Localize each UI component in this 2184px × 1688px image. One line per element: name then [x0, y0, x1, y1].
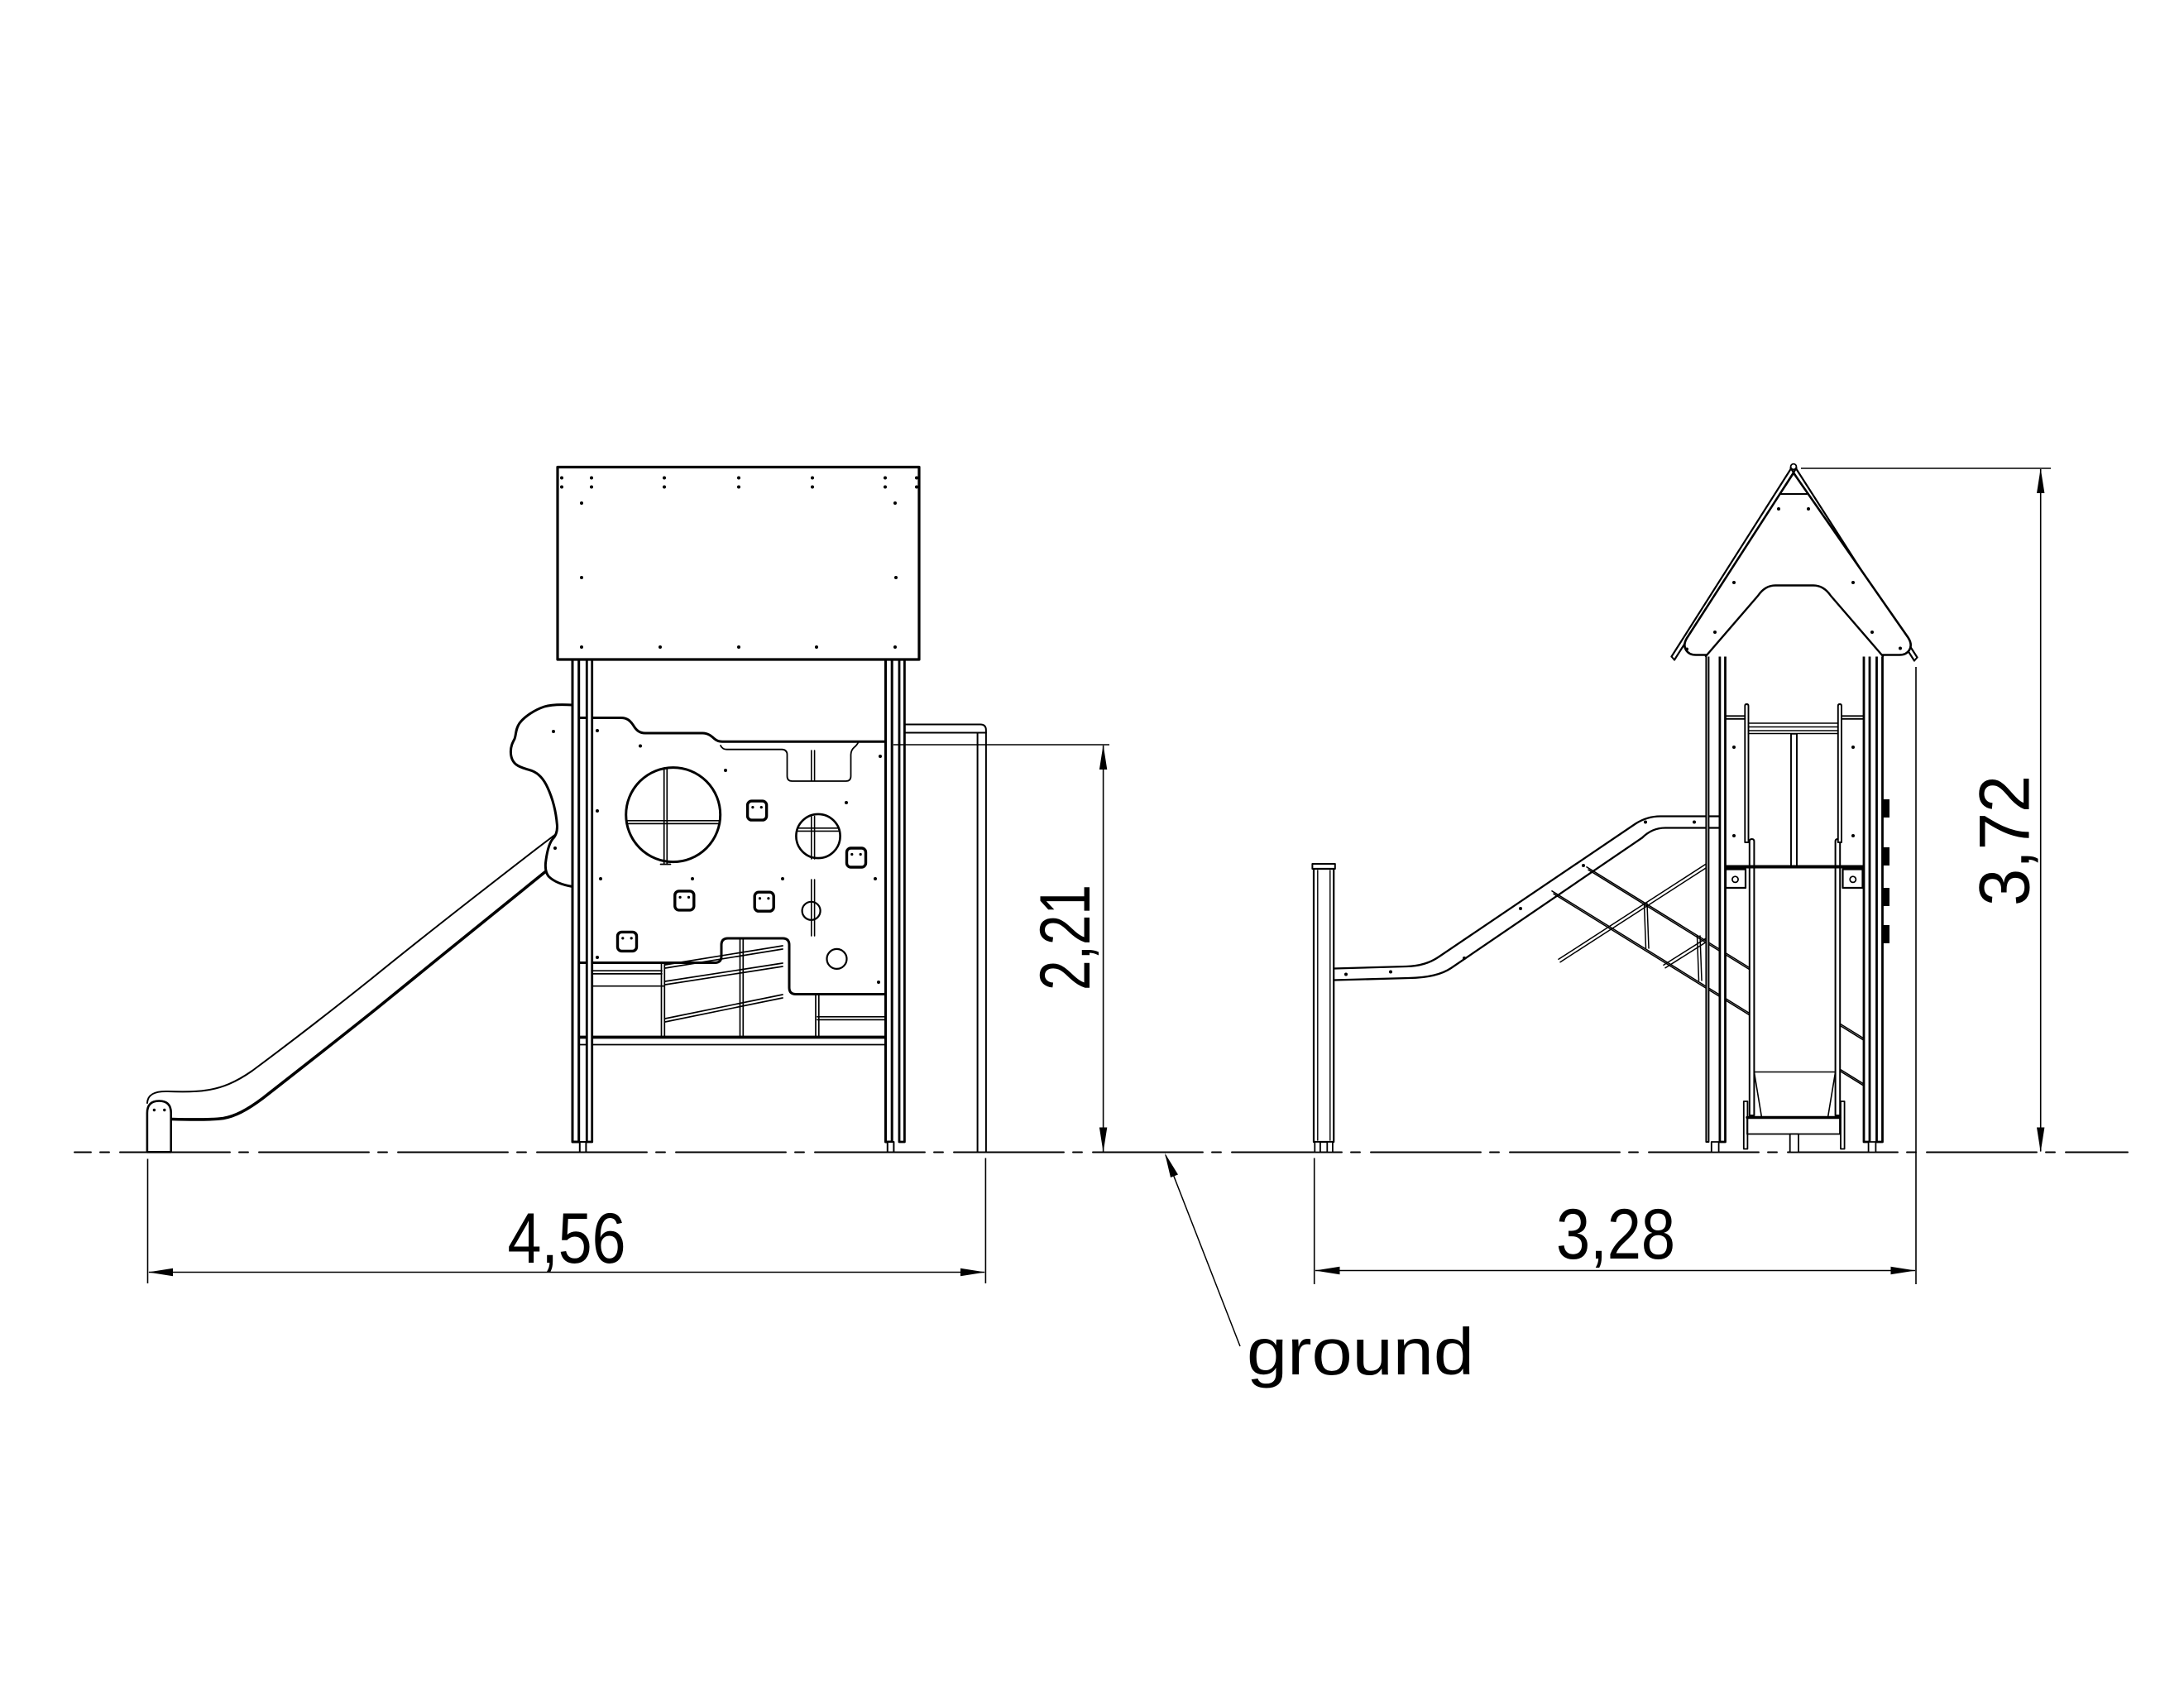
- svg-text:3,28: 3,28: [1556, 1195, 1675, 1274]
- svg-text:ground: ground: [1247, 1315, 1474, 1388]
- svg-text:4,56: 4,56: [508, 1199, 626, 1278]
- svg-text:3,72: 3,72: [1966, 775, 2045, 906]
- svg-text:2,21: 2,21: [1026, 885, 1105, 990]
